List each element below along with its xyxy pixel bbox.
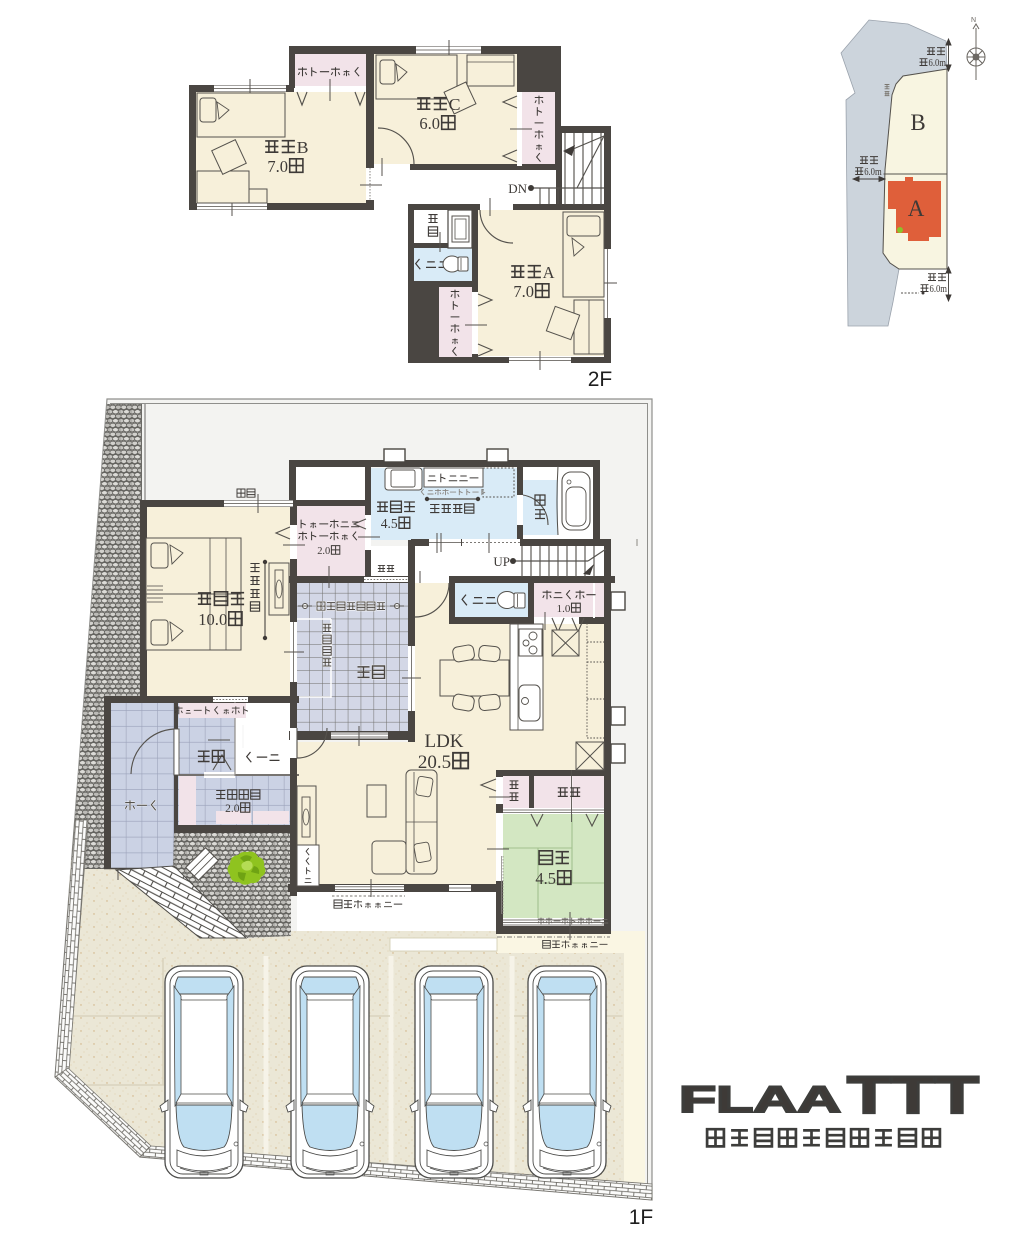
svg-text:2.0: 2.0 [317,546,330,557]
svg-text:A: A [908,196,925,221]
svg-text:UP: UP [493,554,510,569]
svg-text:6.0: 6.0 [419,114,440,133]
svg-text:B: B [910,110,925,135]
svg-text:1.0: 1.0 [557,603,571,615]
svg-text:TTT: TTT [847,1066,979,1125]
svg-text:6.0m: 6.0m [929,58,947,69]
svg-text:6.0m: 6.0m [930,284,948,295]
svg-text:FLAA: FLAA [679,1079,841,1120]
svg-text:7.0: 7.0 [513,282,534,301]
svg-text:LDK: LDK [424,731,463,752]
svg-text:2.0: 2.0 [225,803,240,815]
svg-text:B: B [297,138,309,157]
svg-text:A: A [543,263,555,282]
svg-text:4.5: 4.5 [535,869,556,888]
svg-text:4.5: 4.5 [381,516,398,531]
svg-text:N: N [971,17,976,24]
svg-text:DN: DN [508,181,527,196]
svg-text:C: C [449,95,461,114]
svg-text:7.0: 7.0 [267,157,288,176]
svg-text:2F: 2F [588,368,613,391]
svg-text:10.0: 10.0 [198,610,227,629]
svg-text:1F: 1F [629,1206,654,1229]
